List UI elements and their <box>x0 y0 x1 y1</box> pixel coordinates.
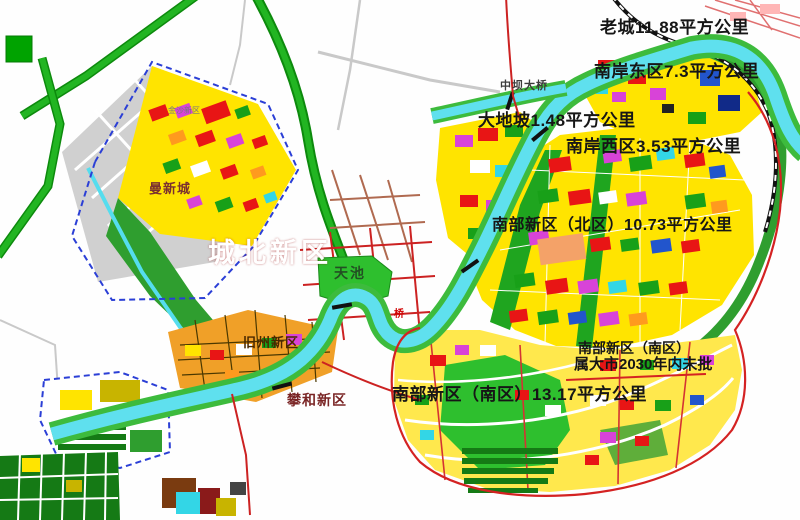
label-jiuzhou: 旧州新区 <box>243 336 299 349</box>
label-manxincheng: 曼新城 <box>149 182 191 195</box>
plan-map-stage: 老城11.88平方公里 南岸东区7.3平方公里 中坝大桥 大地坡1.48平方公里… <box>0 0 800 520</box>
sw-green-blocks <box>0 452 120 520</box>
label-chengbei-new-district: 城北新区 <box>208 240 332 267</box>
label-panhe: 攀和新区 <box>287 393 347 407</box>
label-nanbu-south-note: 属大市2030年内未批 <box>574 357 712 372</box>
label-nanan-east: 南岸东区7.3平方公里 <box>594 63 759 80</box>
label-nanbu-south-area: 南部新区（南区）13.17平方公里 <box>392 386 647 403</box>
label-qiao: 桥 <box>394 310 404 320</box>
label-nanan-west: 南岸西区3.53平方公里 <box>566 138 741 155</box>
label-nw-tiny: 金沙新区 <box>168 107 200 115</box>
label-nanbu-south-name: 南部新区（南区） <box>578 341 690 355</box>
label-dadipo: 大地坡1.48平方公里 <box>478 112 636 129</box>
label-nanbu-north: 南部新区（北区）10.73平方公里 <box>492 218 733 234</box>
label-zhongba-bridge: 中坝大桥 <box>500 81 548 92</box>
label-tianchi: 天池 <box>334 266 366 280</box>
label-old-city: 老城11.88平方公里 <box>600 19 749 36</box>
